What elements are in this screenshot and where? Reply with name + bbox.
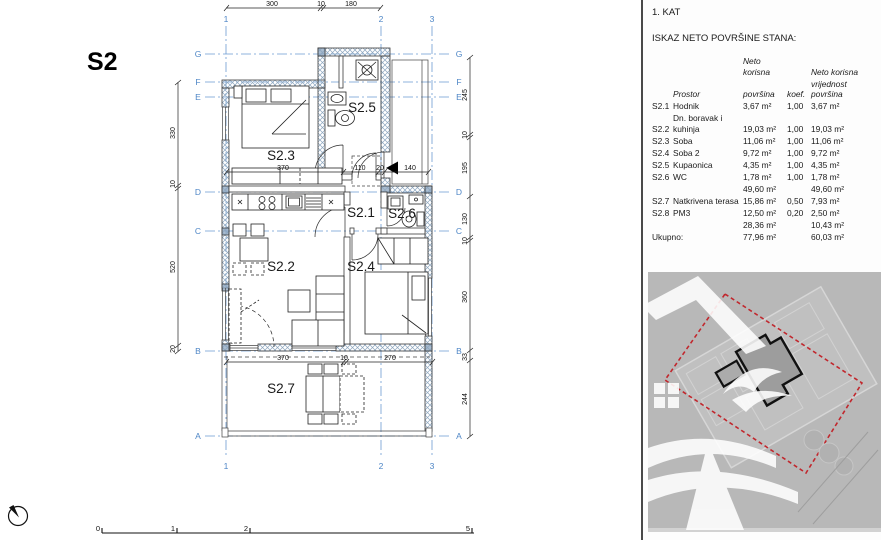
cell-value: 1,78 m² — [811, 172, 876, 184]
grid-row-label: G — [195, 49, 202, 59]
cell-value: 7,93 m² — [811, 196, 876, 208]
cell-name: Dn. boravak i kuhinja — [673, 113, 743, 136]
cell-name: PM3 — [673, 208, 743, 220]
cell-koef: 0,50 — [787, 196, 811, 208]
grid-row-label: C — [195, 226, 201, 236]
room-label-s26: S2.6 — [388, 206, 416, 221]
livingroom-door-arc — [315, 207, 345, 237]
dim-label: 140 — [404, 165, 416, 172]
cell-id: S2.4 — [652, 148, 673, 160]
dim-label: 10 — [340, 355, 348, 362]
north-compass-icon — [9, 505, 28, 526]
grid-col-label: 3 — [430, 14, 435, 24]
cell-koef: 1,00 — [787, 136, 811, 148]
room-label-s27: S2.7 — [267, 381, 295, 396]
cell-value: 19,03 m² — [811, 113, 876, 136]
unit-title: S2 — [87, 48, 118, 76]
dim-label: 33 — [462, 353, 469, 361]
kitchen-counter-icon — [232, 194, 344, 210]
scale-label: 5 — [466, 524, 470, 533]
dim-label: 520 — [170, 261, 177, 273]
cell-area: 77,96 m² — [743, 232, 787, 244]
screenshot-root: S2 1 2 3 1 2 3 G F E D C B A G F E D — [0, 0, 881, 540]
col-header-area1: Neto korisna — [743, 56, 787, 79]
table-subtotal-row: 28,36 m² 10,43 m² — [652, 220, 876, 232]
cell-value: 10,43 m² — [811, 220, 876, 232]
floor-title: 1. KAT — [652, 7, 680, 18]
info-panel: 1. KAT ISKAZ NETO POVRŠINE STANA: Neto k… — [643, 0, 881, 540]
cell-koef: 1,00 — [787, 101, 811, 113]
table-row: S2.8 PM3 12,50 m² 0,20 2,50 m² — [652, 208, 876, 220]
cell-id: S2.2 — [652, 113, 673, 136]
dim-label: 244 — [462, 393, 469, 405]
dim-label: 270 — [384, 355, 396, 362]
grid-row-label: G — [456, 49, 463, 59]
dim-label: 20 — [376, 165, 384, 172]
dim-label: 110 — [354, 165, 365, 172]
grid-col-label: 1 — [224, 461, 229, 471]
cell-value: 49,60 m² — [811, 184, 876, 196]
cell-koef: 1,00 — [787, 172, 811, 184]
col-header-val2: vrijednost površina — [811, 79, 876, 102]
table-total-row: Ukupno: 77,96 m² 60,03 m² — [652, 232, 876, 244]
dim-label: 360 — [462, 291, 469, 303]
grid-col-label: 2 — [379, 14, 384, 24]
dim-label: 180 — [345, 1, 357, 8]
table-row: S2.3 Soba 11,06 m² 1,00 11,06 m² — [652, 136, 876, 148]
col-header-koef: koef. — [787, 79, 811, 102]
table-row: S2.7 Natkrivena terasa 15,86 m² 0,50 7,9… — [652, 196, 876, 208]
coffee-table-icon — [288, 290, 310, 312]
cell-id: S2.7 — [652, 196, 673, 208]
scale-bar: 0 1 2 5 — [96, 524, 474, 533]
cell-value: 9,72 m² — [811, 148, 876, 160]
cell-id: S2.5 — [652, 160, 673, 172]
cell-name: Soba 2 — [673, 148, 743, 160]
grid-row-label: E — [195, 92, 201, 102]
bathroom-sink-icon — [328, 92, 346, 105]
grid-row-label: D — [456, 187, 462, 197]
dim-label: 370 — [277, 165, 289, 172]
dim-label: 130 — [462, 213, 469, 225]
grid-row-label: C — [456, 226, 462, 236]
cell-koef: 1,00 — [787, 160, 811, 172]
cell-name: Kupaonica — [673, 160, 743, 172]
dim-label: 245 — [462, 89, 469, 101]
cell-id: S2.3 — [652, 136, 673, 148]
floor-plan-drawing: S2 1 2 3 1 2 3 G F E D C B A G F E D — [0, 0, 641, 540]
cell-area: 1,78 m² — [743, 172, 787, 184]
cell-area: 4,35 m² — [743, 160, 787, 172]
grid-row-label: F — [195, 77, 200, 87]
grid-row-label: A — [456, 431, 462, 441]
scale-label: 1 — [171, 524, 175, 533]
wardrobe-icon — [378, 238, 428, 264]
total-label: Ukupno: — [652, 232, 743, 244]
col-header-val1: Neto korisna — [811, 56, 876, 79]
dim-label: 10 — [462, 237, 469, 245]
areas-table: Neto korisna Neto korisna Prostor površi… — [652, 56, 876, 244]
grid-col-label: 3 — [430, 461, 435, 471]
cell-koef: 1,00 — [787, 113, 811, 136]
col-header-prostor: Prostor — [673, 79, 743, 102]
cell-id: S2.8 — [652, 208, 673, 220]
site-key-plan — [648, 272, 881, 532]
terrace-table-icon — [306, 364, 364, 424]
cell-value: 60,03 m² — [811, 232, 876, 244]
table-row: S2.5 Kupaonica 4,35 m² 1,00 4,35 m² — [652, 160, 876, 172]
furniture — [229, 60, 428, 424]
cell-id: S2.1 — [652, 101, 673, 113]
cell-name: Hodnik — [673, 101, 743, 113]
cell-id: S2.6 — [652, 172, 673, 184]
grid-row-label: B — [195, 346, 201, 356]
dim-label: 10 — [462, 131, 469, 139]
scale-label: 0 — [96, 524, 100, 533]
cell-area: 11,06 m² — [743, 136, 787, 148]
cell-name: WC — [673, 172, 743, 184]
cell-area: 9,72 m² — [743, 148, 787, 160]
grid-row-label: D — [195, 187, 201, 197]
cell-area: 19,03 m² — [743, 113, 787, 136]
room-label-s24: S2.4 — [347, 259, 375, 274]
cell-value: 11,06 m² — [811, 136, 876, 148]
site-edge — [648, 528, 881, 532]
cell-area: 12,50 m² — [743, 208, 787, 220]
dim-label: 10 — [170, 180, 177, 188]
dining-table-icon — [233, 224, 268, 275]
cell-value: 3,67 m² — [811, 101, 876, 113]
dim-label: 330 — [170, 127, 177, 139]
room-label-s22: S2.2 — [267, 259, 295, 274]
dim-label: 20 — [170, 345, 177, 353]
grid-col-label: 1 — [224, 14, 229, 24]
cell-value: 2,50 m² — [811, 208, 876, 220]
bed2-icon — [365, 272, 428, 334]
grid-row-label: A — [195, 431, 201, 441]
washing-machine-icon — [356, 60, 378, 80]
areas-subtitle: ISKAZ NETO POVRŠINE STANA: — [652, 33, 796, 44]
cell-koef: 0,20 — [787, 208, 811, 220]
cell-area: 15,86 m² — [743, 196, 787, 208]
table-subtotal-row: 49,60 m² 49,60 m² — [652, 184, 876, 196]
table-header-row: Neto korisna Neto korisna — [652, 56, 876, 79]
tv-cabinet-icon — [229, 289, 259, 343]
col-header-area2: površina — [743, 79, 787, 102]
room-label-s23: S2.3 — [267, 148, 295, 163]
table-row: S2.6 WC 1,78 m² 1,00 1,78 m² — [652, 172, 876, 184]
dim-label: 370 — [277, 355, 289, 362]
cell-area: 3,67 m² — [743, 101, 787, 113]
cell-koef: 1,00 — [787, 148, 811, 160]
scale-label: 2 — [244, 524, 248, 533]
cell-area: 28,36 m² — [743, 220, 787, 232]
table-row: S2.4 Soba 2 9,72 m² 1,00 9,72 m² — [652, 148, 876, 160]
table-row: S2.2 Dn. boravak i kuhinja 19,03 m² 1,00… — [652, 113, 876, 136]
table-row: S2.1 Hodnik 3,67 m² 1,00 3,67 m² — [652, 101, 876, 113]
dim-label: 195 — [462, 162, 469, 174]
room-label-s25: S2.5 — [348, 100, 376, 115]
dim-label: 10 — [317, 1, 325, 8]
grid-col-label: 2 — [379, 461, 384, 471]
cell-name: Natkrivena terasa — [673, 196, 743, 208]
dim-label: 300 — [266, 1, 278, 8]
cell-name: Soba — [673, 136, 743, 148]
grid-row-label: F — [456, 77, 461, 87]
bed-icon — [234, 86, 309, 148]
bedroom2-door-arc — [352, 234, 378, 260]
room-label-s21: S2.1 — [347, 205, 375, 220]
table-header-row: Prostor površina koef. vrijednost površi… — [652, 79, 876, 102]
cell-value: 4,35 m² — [811, 160, 876, 172]
cell-area: 49,60 m² — [743, 184, 787, 196]
